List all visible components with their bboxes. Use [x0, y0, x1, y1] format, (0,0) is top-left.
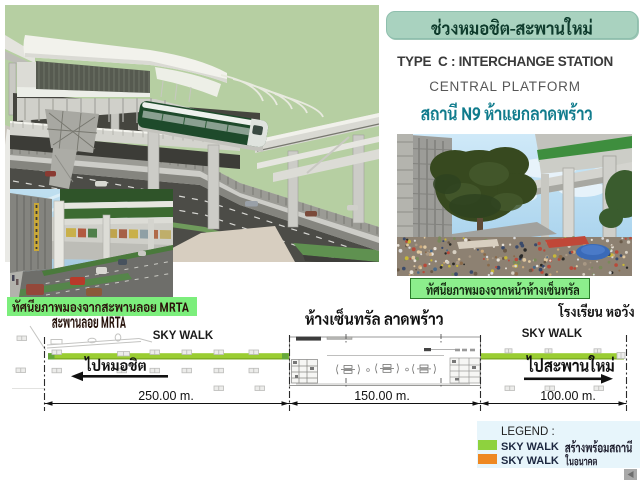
svg-text:150.00 m.: 150.00 m.: [354, 389, 410, 403]
svg-text:SKY WALK: SKY WALK: [153, 330, 214, 342]
svg-text:SKY WALK: SKY WALK: [522, 328, 583, 340]
svg-text:250.00 m.: 250.00 m.: [138, 389, 194, 403]
svg-text:100.00 m.: 100.00 m.: [540, 389, 596, 403]
